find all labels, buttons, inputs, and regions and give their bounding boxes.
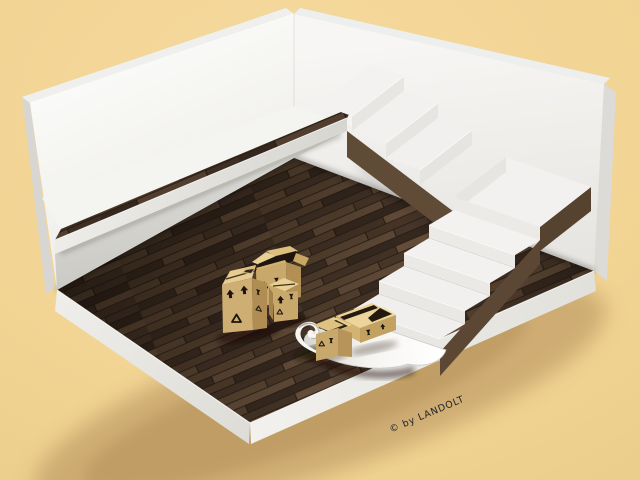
render-canvas: © by LANDOLT (0, 0, 640, 480)
box-front (222, 278, 253, 333)
box-side-right (252, 278, 267, 330)
box-side-right (338, 328, 352, 357)
scene-svg: © by LANDOLT (0, 0, 640, 480)
box-front (273, 291, 298, 322)
curl-box-left (314, 317, 352, 361)
